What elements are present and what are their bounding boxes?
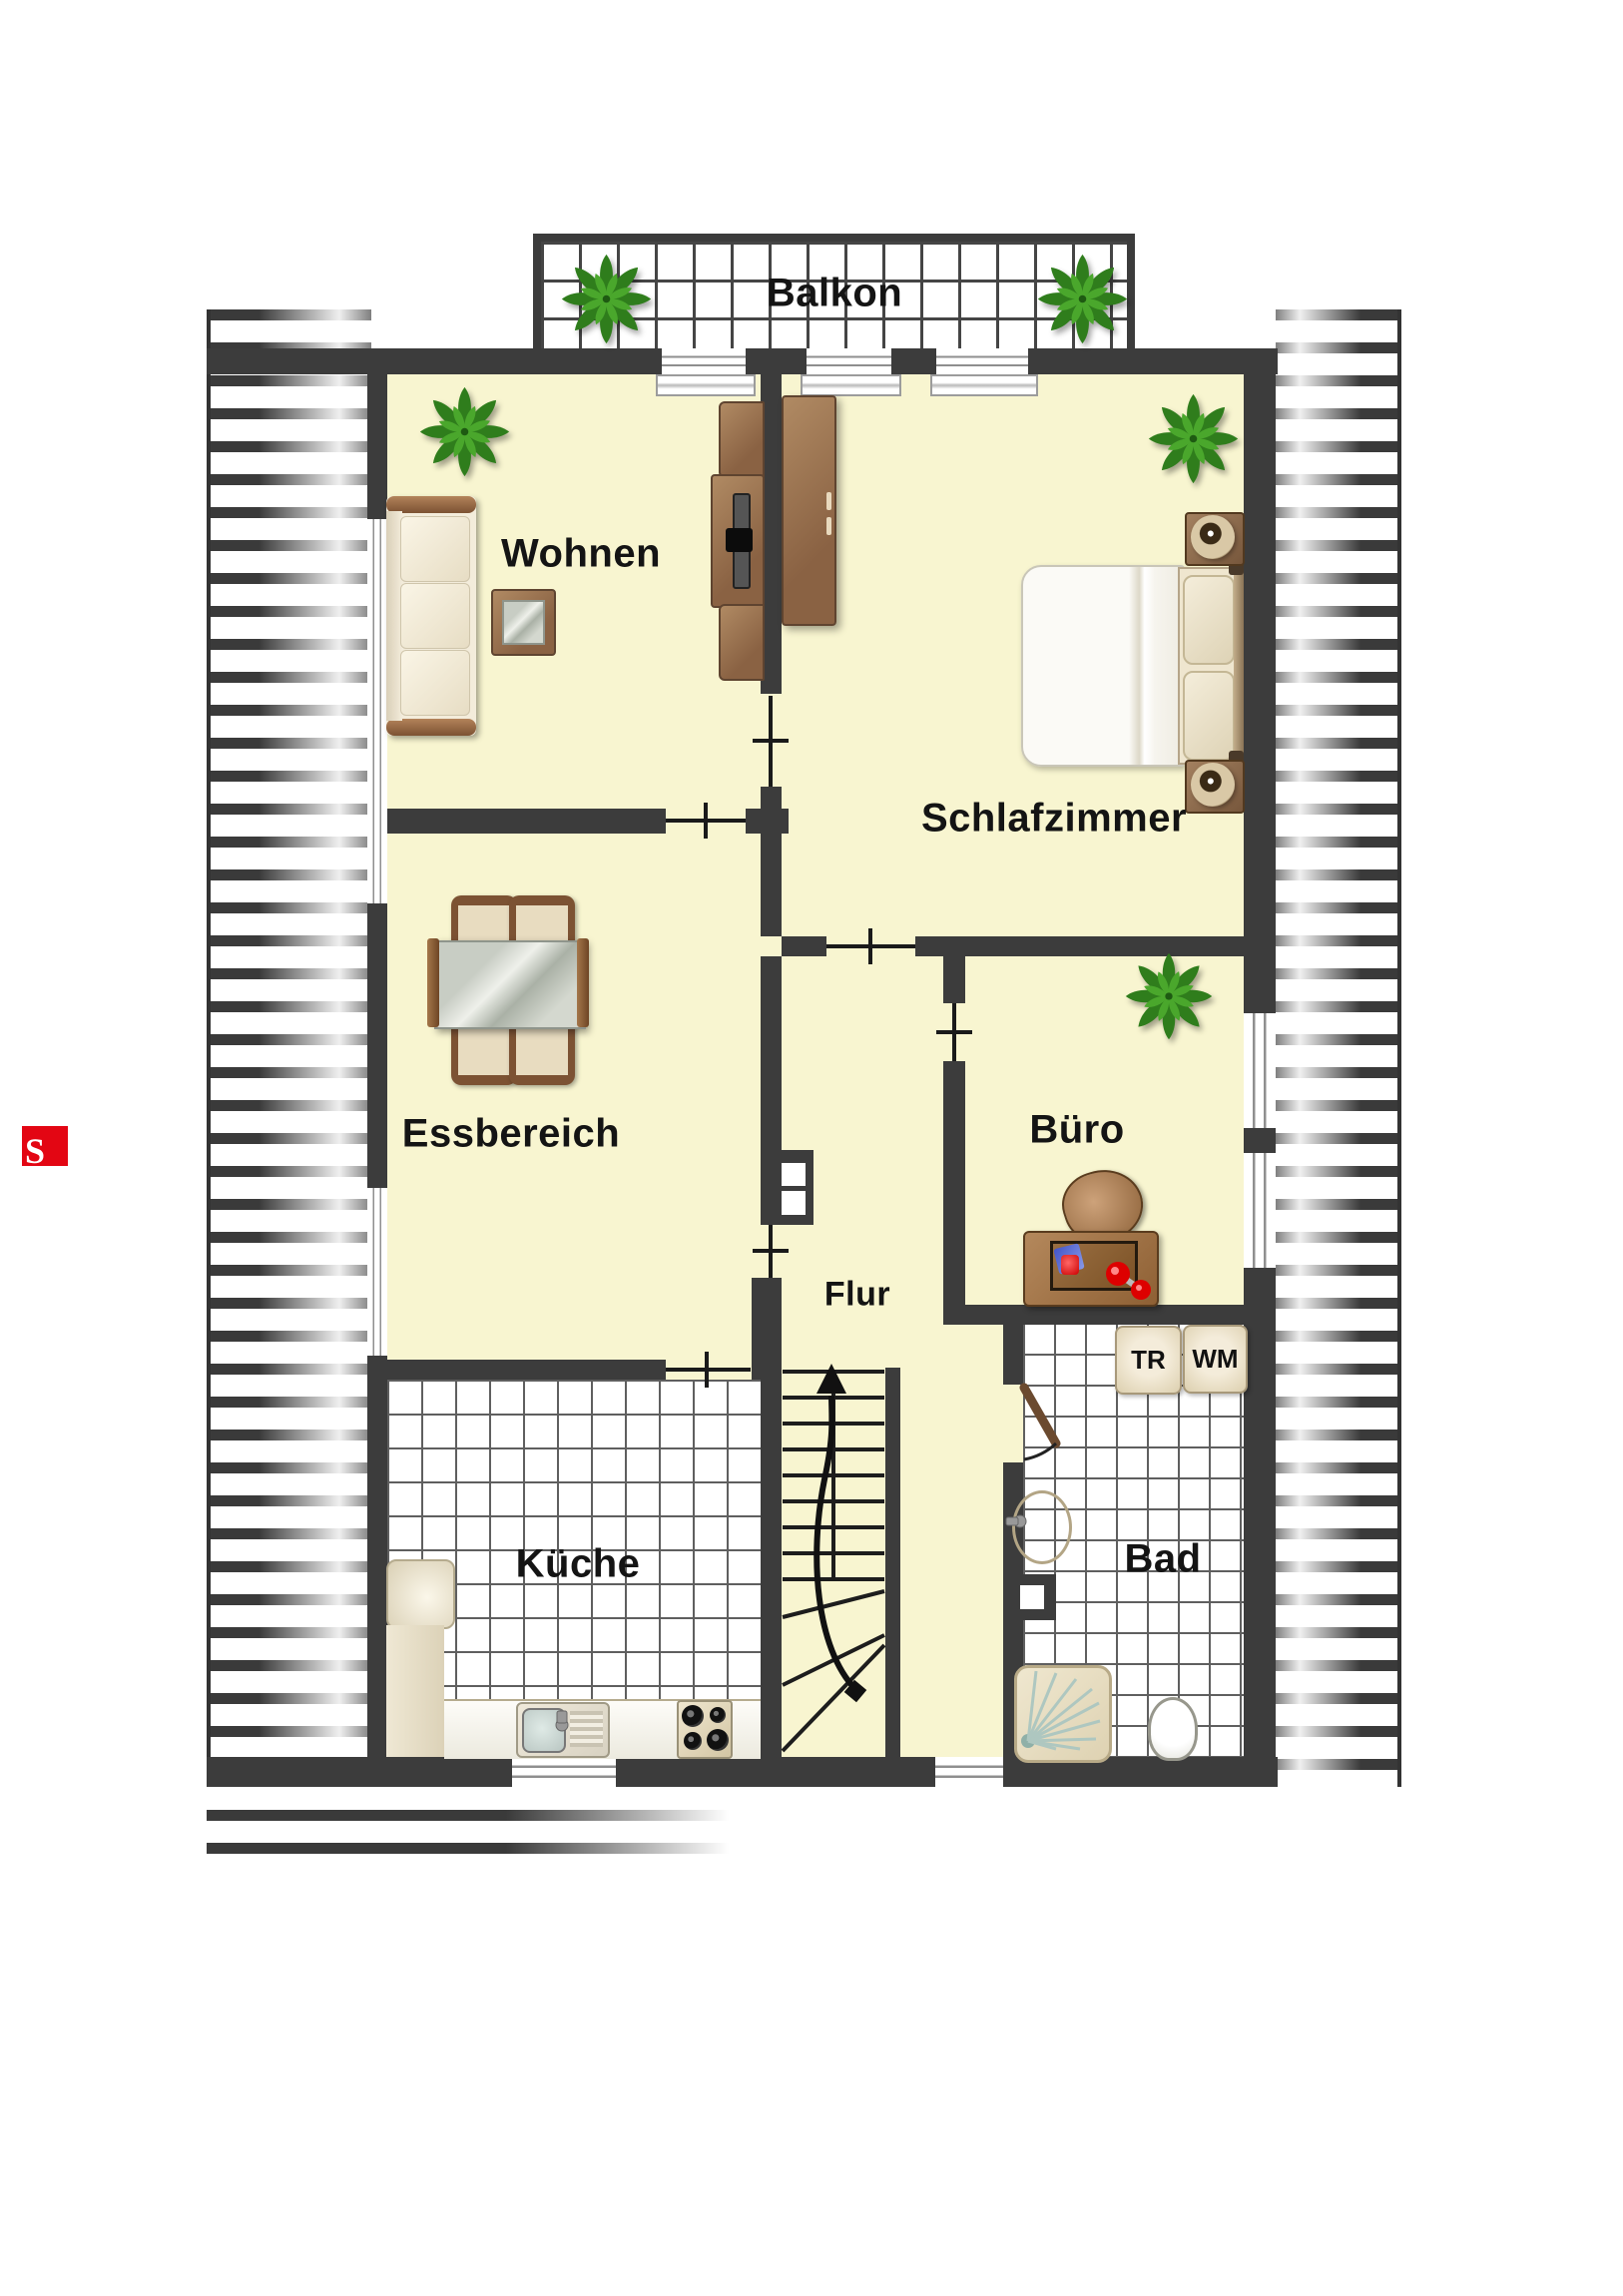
wall-office-left xyxy=(943,956,965,1003)
balcony-door-bedroom-1 xyxy=(807,348,891,374)
window-living-left xyxy=(367,519,387,903)
window-office-right-2 xyxy=(1244,1153,1276,1268)
wall-stairwell-left xyxy=(761,1380,782,1757)
outer-wall-right xyxy=(1244,374,1276,1013)
outer-wall-bottom xyxy=(207,1757,512,1787)
wall-stairwell-right xyxy=(885,1368,900,1757)
window-sill xyxy=(801,374,901,396)
balcony-door-bedroom-2 xyxy=(936,348,1028,374)
roof-hatch-right xyxy=(1276,309,1401,1787)
stove-icon xyxy=(677,1700,733,1759)
pillow-icon xyxy=(1183,575,1235,665)
roof-hatch-left xyxy=(207,309,371,1787)
window-dining-left xyxy=(367,1188,387,1356)
washer-box: WM xyxy=(1183,1325,1248,1394)
balcony-door-living xyxy=(662,348,746,374)
shower-icon xyxy=(1014,1665,1112,1763)
dining-table-rail xyxy=(427,938,439,1027)
room-label-bedroom: Schlafzimmer xyxy=(921,797,1187,842)
room-label-living: Wohnen xyxy=(501,532,661,577)
room-label-balcony: Balkon xyxy=(767,272,902,316)
roof-hatch-bottom-bar xyxy=(207,1810,751,1821)
plant-icon xyxy=(559,252,654,346)
balcony-wall xyxy=(533,234,541,349)
kitchen-sink-icon xyxy=(516,1702,610,1758)
wall-office-bottom xyxy=(943,1305,1244,1325)
nightstand-lamp-icon xyxy=(1191,763,1235,807)
floor-plan: Balkon xyxy=(0,0,1623,2296)
mug-icon xyxy=(1061,1255,1079,1275)
nightstand-lamp-icon xyxy=(1191,515,1235,559)
bath-shaft-icon xyxy=(1010,1574,1056,1620)
balcony-wall xyxy=(533,234,1135,242)
roof-hatch-bottom-bar xyxy=(207,1843,751,1854)
tv-cabinet-icon xyxy=(719,401,765,478)
wall-living-dining xyxy=(387,809,666,834)
wall-kitchen-top xyxy=(387,1360,666,1380)
wall-junction xyxy=(746,809,789,834)
room-label-hall: Flur xyxy=(824,1276,890,1315)
room-label-kitchen: Küche xyxy=(516,1542,641,1587)
window-kitchen-bottom xyxy=(512,1757,616,1787)
dining-table-rail xyxy=(577,938,589,1027)
tv-icon xyxy=(726,528,753,552)
outer-wall-right xyxy=(1244,1268,1276,1757)
tv-cabinet-icon xyxy=(719,604,765,681)
dining-table-icon xyxy=(434,940,586,1029)
window-sill xyxy=(656,374,756,396)
kitchen-counter xyxy=(386,1625,444,1757)
outer-wall-right xyxy=(1244,1128,1276,1153)
wall-dining-hall xyxy=(761,956,782,1150)
window-sill xyxy=(930,374,1038,396)
bed-headboard xyxy=(1234,562,1244,768)
washer-label: WM xyxy=(1192,1344,1238,1375)
wall-office-left xyxy=(943,1061,965,1305)
room-label-office: Büro xyxy=(1029,1108,1124,1153)
outer-wall-left xyxy=(367,903,387,1188)
outer-wall-left xyxy=(367,374,387,519)
plant-icon xyxy=(1035,252,1130,346)
plant-icon xyxy=(417,384,512,479)
entry-opening-bottom xyxy=(935,1757,1003,1787)
sofa-icon xyxy=(386,496,476,736)
chimney-shaft-icon xyxy=(761,1150,813,1225)
plant-icon xyxy=(1123,950,1215,1042)
side-table-icon xyxy=(491,589,556,656)
double-bed-icon xyxy=(1021,565,1185,767)
wall-bath-left xyxy=(1003,1323,1023,1385)
pillow-icon xyxy=(1183,671,1235,761)
dryer-label: TR xyxy=(1131,1345,1166,1376)
wall-dining-hall xyxy=(752,1278,782,1380)
wall-bedroom-south xyxy=(782,936,826,956)
outer-wall-left xyxy=(367,1356,387,1757)
room-label-bath: Bad xyxy=(1124,1537,1201,1582)
outer-wall-bottom xyxy=(616,1757,935,1787)
toilet-icon xyxy=(1148,1697,1198,1761)
kitchen-corner-unit xyxy=(386,1559,455,1629)
wardrobe-icon xyxy=(782,395,836,626)
plant-icon xyxy=(1146,391,1241,486)
window-office-right-1 xyxy=(1244,1013,1276,1128)
dryer-box: TR xyxy=(1115,1326,1182,1395)
bath-sink-icon xyxy=(1012,1490,1072,1564)
desk-icon xyxy=(1023,1231,1159,1307)
logo-s: S xyxy=(22,1126,68,1166)
logo-letter: S xyxy=(25,1130,45,1172)
room-label-dining: Essbereich xyxy=(402,1112,620,1157)
